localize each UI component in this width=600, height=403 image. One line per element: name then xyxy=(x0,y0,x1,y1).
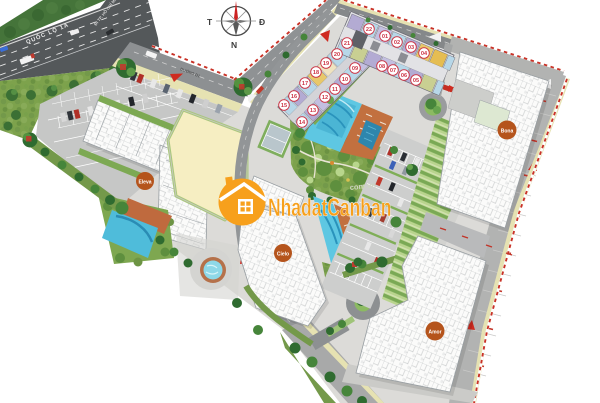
svg-text:06: 06 xyxy=(401,73,407,79)
svg-text:13: 13 xyxy=(310,108,316,114)
svg-text:15: 15 xyxy=(281,103,287,109)
svg-text:14: 14 xyxy=(299,120,306,126)
svg-text:07: 07 xyxy=(390,68,396,74)
svg-text:Bona: Bona xyxy=(501,129,514,135)
svg-text:08: 08 xyxy=(379,64,385,70)
svg-text:N: N xyxy=(231,40,237,50)
svg-text:01: 01 xyxy=(382,34,388,40)
svg-text:02: 02 xyxy=(394,40,400,46)
svg-text:09: 09 xyxy=(352,66,358,72)
svg-text:NhadatCanban: NhadatCanban xyxy=(268,193,391,222)
svg-text:10: 10 xyxy=(342,77,348,83)
svg-text:20: 20 xyxy=(334,52,340,58)
svg-text:16: 16 xyxy=(291,94,297,100)
svg-text:Amor: Amor xyxy=(428,330,441,336)
svg-text:Đ: Đ xyxy=(259,17,265,27)
svg-text:Eleva: Eleva xyxy=(138,180,151,186)
svg-text:Cielo: Cielo xyxy=(277,252,289,258)
svg-text:05: 05 xyxy=(413,78,419,84)
svg-text:22: 22 xyxy=(366,27,372,33)
svg-text:11: 11 xyxy=(332,87,338,93)
svg-text:03: 03 xyxy=(408,45,414,51)
svg-text:21: 21 xyxy=(344,41,350,47)
svg-text:18: 18 xyxy=(313,70,319,76)
svg-text:19: 19 xyxy=(323,61,329,67)
svg-text:04: 04 xyxy=(421,51,428,57)
svg-text:T: T xyxy=(207,17,213,27)
svg-text:12: 12 xyxy=(322,95,328,101)
svg-text:17: 17 xyxy=(302,81,308,87)
